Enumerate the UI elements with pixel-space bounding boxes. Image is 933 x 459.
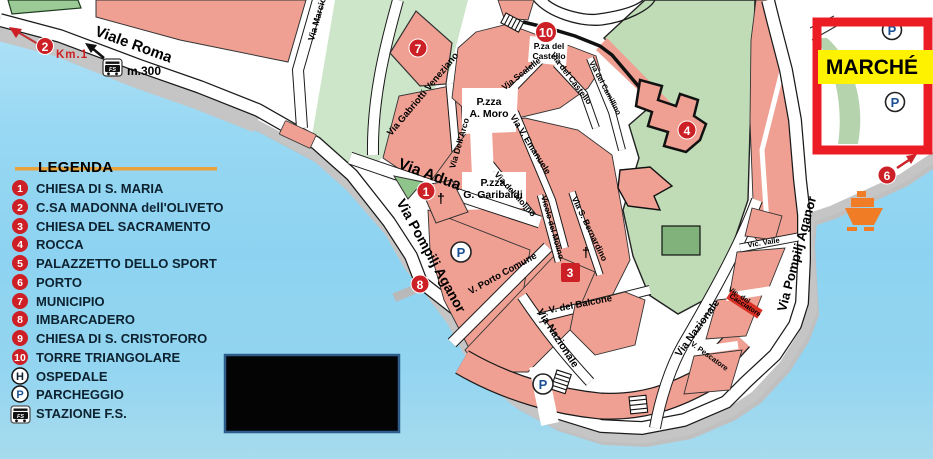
svg-text:MARCHÉ: MARCHÉ xyxy=(826,56,918,79)
svg-text:6: 6 xyxy=(884,169,891,183)
svg-text:6: 6 xyxy=(17,277,23,289)
svg-text:CHIESA DEL SACRAMENTO: CHIESA DEL SACRAMENTO xyxy=(36,219,211,234)
svg-text:H: H xyxy=(16,371,24,383)
svg-text:Km.1: Km.1 xyxy=(56,49,88,61)
svg-text:TORRE TRIANGOLARE: TORRE TRIANGOLARE xyxy=(36,350,181,365)
svg-text:7: 7 xyxy=(17,296,23,308)
svg-text:C.SA MADONNA dell'OLIVETO: C.SA MADONNA dell'OLIVETO xyxy=(36,200,224,215)
svg-text:m.300: m.300 xyxy=(127,64,161,78)
svg-text:FS: FS xyxy=(109,67,116,73)
svg-text:P.zza: P.zza xyxy=(481,177,506,189)
svg-text:8: 8 xyxy=(17,314,23,326)
svg-text:5: 5 xyxy=(17,258,23,270)
svg-text:PORTO: PORTO xyxy=(36,275,82,290)
svg-text:P: P xyxy=(891,95,900,110)
svg-text:CHIESA DI S. CRISTOFORO: CHIESA DI S. CRISTOFORO xyxy=(36,331,207,346)
svg-text:2: 2 xyxy=(17,202,23,214)
svg-text:3: 3 xyxy=(567,266,574,280)
svg-text:MUNICIPIO: MUNICIPIO xyxy=(36,294,105,309)
svg-text:ROCCA: ROCCA xyxy=(36,237,84,252)
svg-text:7: 7 xyxy=(415,42,422,56)
svg-text:4: 4 xyxy=(17,239,23,251)
svg-text:PALAZZETTO DELLO SPORT: PALAZZETTO DELLO SPORT xyxy=(36,256,217,271)
svg-text:†: † xyxy=(437,190,445,206)
svg-text:3: 3 xyxy=(17,221,23,233)
svg-text:IMBARCADERO: IMBARCADERO xyxy=(36,312,135,327)
svg-text:10: 10 xyxy=(14,352,26,364)
svg-text:2: 2 xyxy=(42,40,49,54)
svg-text:OSPEDALE: OSPEDALE xyxy=(36,369,108,384)
svg-text:P.zza: P.zza xyxy=(477,96,502,108)
svg-text:LEGENDA: LEGENDA xyxy=(38,159,113,176)
svg-text:4: 4 xyxy=(684,124,691,138)
svg-text:PARCHEGGIO: PARCHEGGIO xyxy=(36,387,124,402)
svg-text:P: P xyxy=(539,377,548,392)
svg-text:P: P xyxy=(457,245,466,260)
svg-text:1: 1 xyxy=(17,183,23,195)
svg-text:G. Garibaldi: G. Garibaldi xyxy=(463,189,523,201)
svg-text:†: † xyxy=(582,244,590,260)
svg-text:A. Moro: A. Moro xyxy=(469,108,508,120)
svg-text:1: 1 xyxy=(423,185,430,199)
svg-text:8: 8 xyxy=(417,278,424,292)
svg-text:10: 10 xyxy=(539,25,553,40)
svg-text:FS: FS xyxy=(17,414,24,420)
svg-text:P: P xyxy=(16,389,23,401)
svg-text:9: 9 xyxy=(17,333,23,345)
svg-text:CHIESA DI S. MARIA: CHIESA DI S. MARIA xyxy=(36,181,164,196)
svg-text:Castello: Castello xyxy=(532,51,565,61)
svg-text:STAZIONE F.S.: STAZIONE F.S. xyxy=(36,406,127,421)
